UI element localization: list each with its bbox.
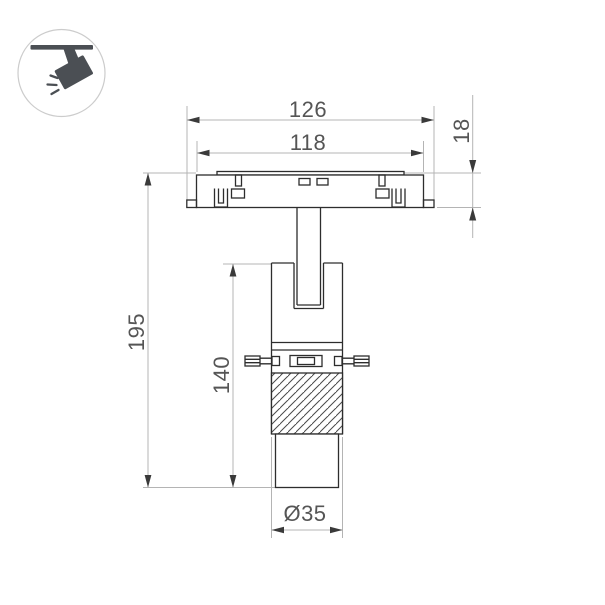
track-foot-right	[424, 200, 435, 208]
dimension-outer-width: 126	[187, 97, 434, 123]
dimension-drawing: 126 118 18 195 140	[0, 0, 605, 605]
dim-outer-width-label: 126	[289, 97, 327, 122]
icon-light-ray	[48, 85, 57, 86]
dimension-diameter: Ø35	[272, 501, 343, 533]
screw-boss-left	[272, 357, 280, 366]
dimension-inner-width: 118	[197, 130, 424, 156]
dim-total-height-label: 195	[124, 313, 149, 351]
stem-slot	[294, 263, 324, 309]
heatsink-hatch	[272, 373, 343, 434]
screw-boss-right	[335, 357, 343, 366]
dim-body-height-label: 140	[209, 356, 234, 394]
adjustment-screws	[245, 356, 369, 367]
stem-rod	[297, 208, 321, 306]
lamp-body	[245, 263, 369, 488]
screw-shaft-right	[343, 358, 355, 364]
screw-shaft-left	[260, 358, 272, 364]
track-foot-left	[187, 200, 197, 208]
dim-track-height-label: 18	[449, 118, 474, 143]
dimension-track-height: 18	[449, 95, 476, 238]
icon-track-bar	[31, 45, 94, 50]
dim-diameter-label: Ø35	[283, 501, 326, 526]
track-spotlight-icon	[18, 30, 105, 117]
track-adapter	[187, 172, 434, 208]
dim-inner-width-label: 118	[290, 130, 327, 155]
screw-knob-right	[354, 356, 369, 366]
stem	[297, 208, 321, 306]
drawing-svg: 126 118 18 195 140	[0, 0, 605, 605]
lamp-head	[276, 434, 339, 488]
dimension-total-height: 195	[124, 173, 151, 488]
body-band	[272, 343, 343, 351]
screw-knob-right-lines	[354, 359, 369, 362]
screw-knob-left-lines	[245, 359, 260, 362]
dimension-body-height: 140	[209, 264, 236, 488]
screw-knob-left	[245, 356, 260, 366]
screw-center-inner	[298, 358, 315, 365]
